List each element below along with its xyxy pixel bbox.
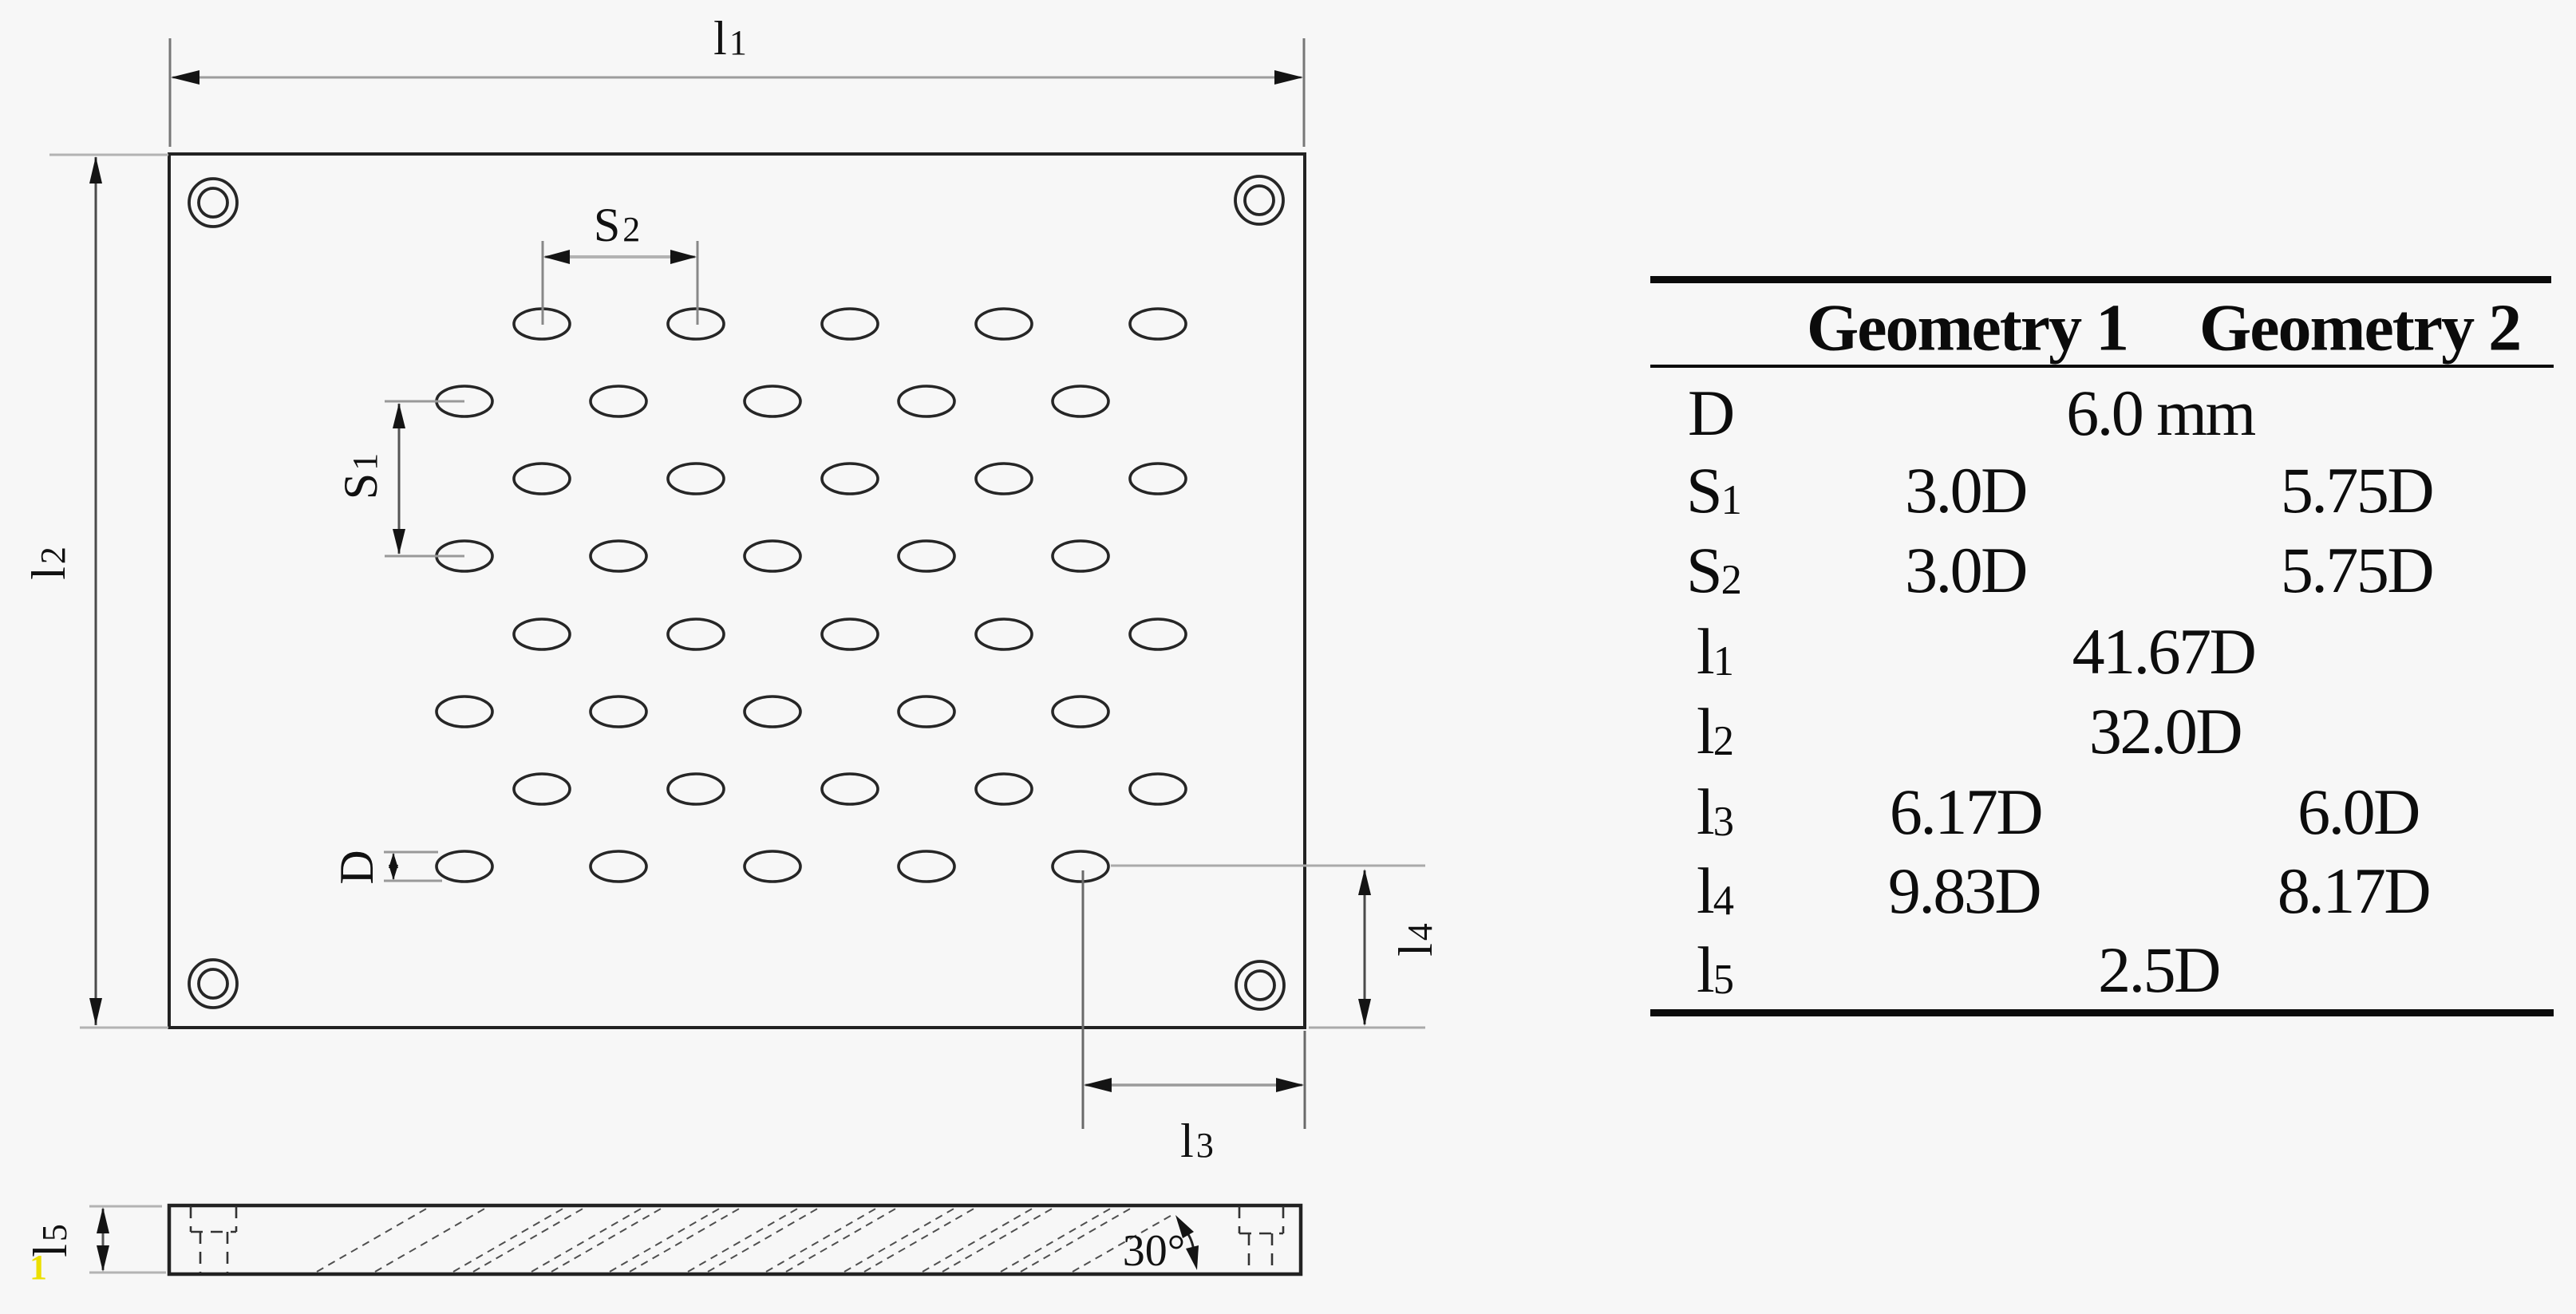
svg-text:30°: 30° [1123, 1226, 1185, 1276]
svg-text:1: 1 [30, 1248, 47, 1287]
svg-text:D: D [330, 850, 383, 884]
svg-text:l1: l1 [713, 12, 747, 65]
svg-text:l4: l4 [1389, 923, 1442, 957]
svg-text:l3: l3 [1180, 1115, 1214, 1167]
svg-text:S1: S1 [334, 453, 387, 499]
svg-text:l2: l2 [22, 547, 75, 580]
svg-text:S2: S2 [594, 199, 640, 251]
